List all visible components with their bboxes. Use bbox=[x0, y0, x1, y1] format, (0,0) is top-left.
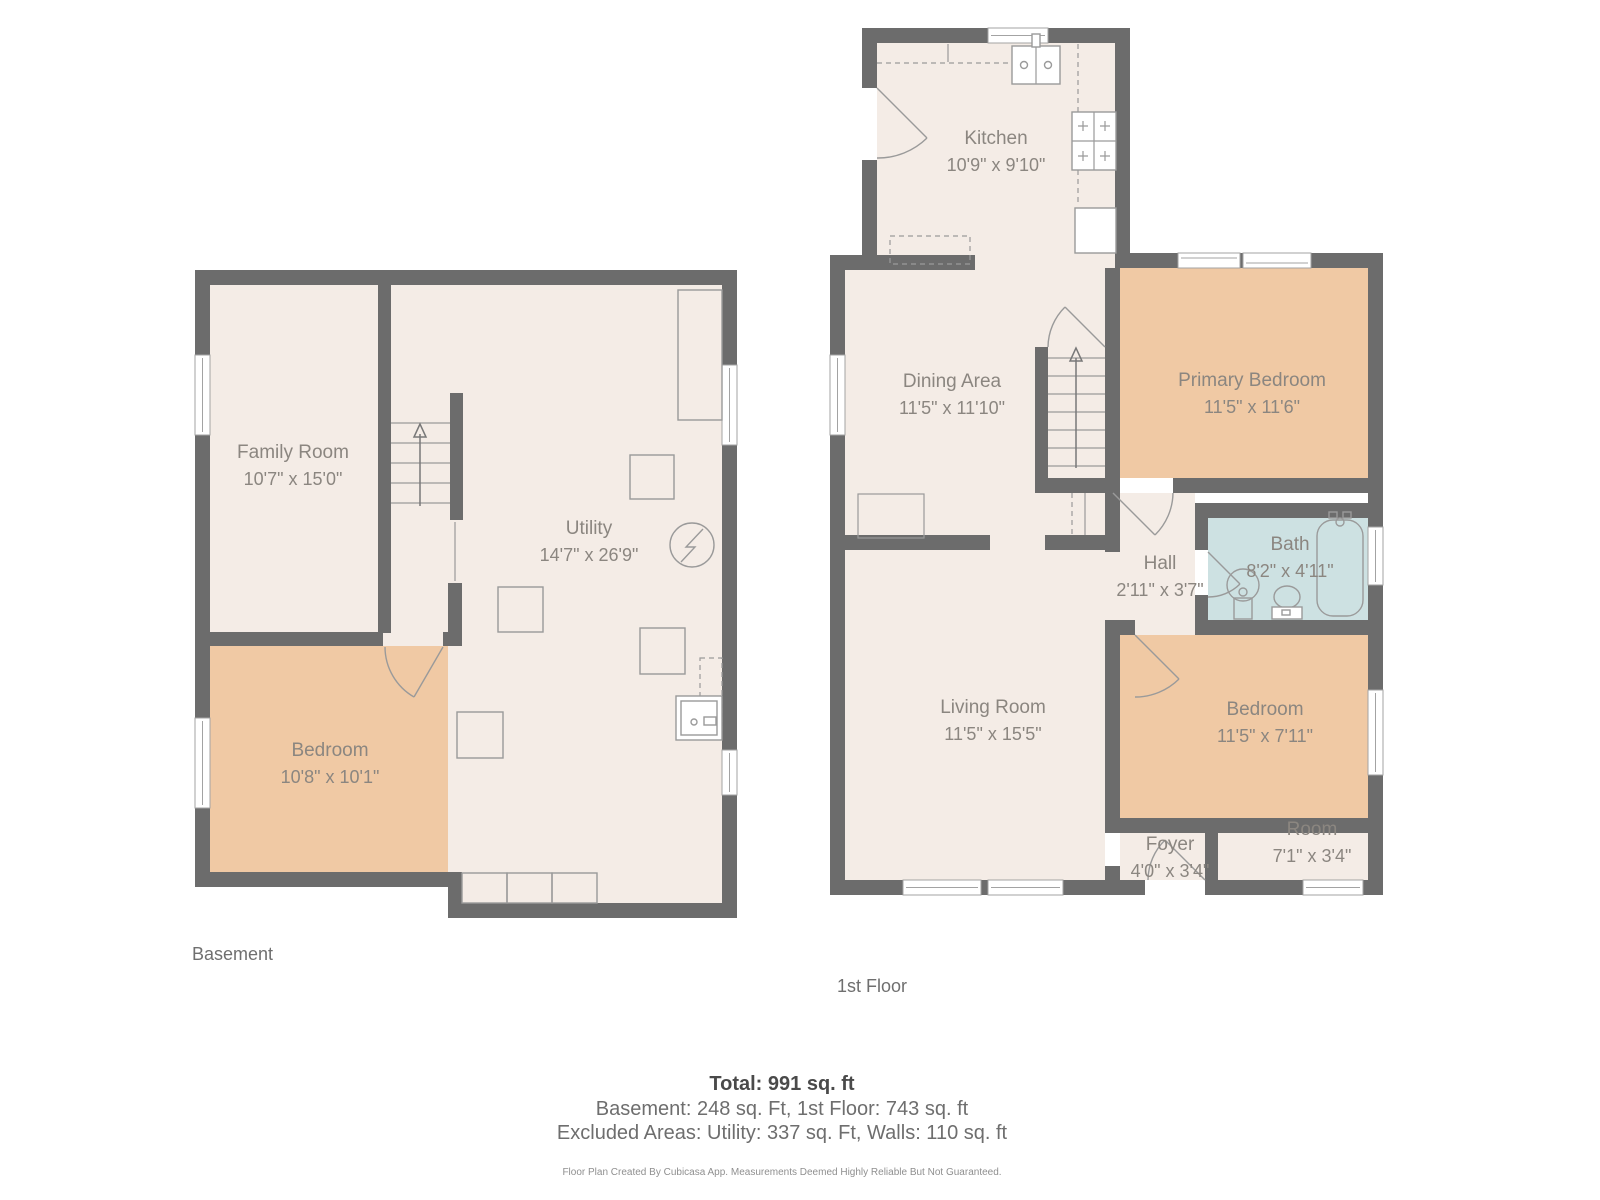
basement-plan bbox=[195, 270, 737, 918]
room-dims: 11'5" x 15'5" bbox=[940, 721, 1046, 747]
window bbox=[1243, 253, 1311, 268]
room-label-basement-bedroom: Bedroom 10'8" x 10'1" bbox=[281, 738, 380, 790]
room-name: Family Room bbox=[237, 440, 349, 466]
room-label-room: Room 7'1" x 3'4" bbox=[1273, 817, 1352, 869]
room-label-living-room: Living Room 11'5" x 15'5" bbox=[940, 695, 1046, 747]
room-dims: 10'8" x 10'1" bbox=[281, 764, 380, 790]
room-name: Bath bbox=[1246, 532, 1333, 558]
room-name: Kitchen bbox=[947, 126, 1046, 152]
room-name: Bedroom bbox=[281, 738, 380, 764]
room-label-dining-area: Dining Area 11'5" x 11'10" bbox=[899, 369, 1005, 421]
room-dims: 4'0" x 3'4" bbox=[1131, 858, 1210, 884]
room-label-bedroom: Bedroom 11'5" x 7'11" bbox=[1217, 697, 1313, 749]
room-name: Foyer bbox=[1131, 832, 1210, 858]
room-name: Room bbox=[1273, 817, 1352, 843]
room-dims: 10'7" x 15'0" bbox=[237, 466, 349, 492]
room-label-foyer: Foyer 4'0" x 3'4" bbox=[1131, 832, 1210, 884]
room-label-primary-bedroom: Primary Bedroom 11'5" x 11'6" bbox=[1178, 368, 1326, 420]
room-dims: 14'7" x 26'9" bbox=[540, 542, 639, 568]
room-name: Living Room bbox=[940, 695, 1046, 721]
room-dims: 11'5" x 7'11" bbox=[1217, 723, 1313, 749]
laundry-sink-icon bbox=[676, 696, 722, 740]
room-dims: 2'11" x 3'7" bbox=[1116, 577, 1203, 603]
excluded-areas: Excluded Areas: Utility: 337 sq. Ft, Wal… bbox=[557, 1121, 1007, 1145]
disclaimer-text: Floor Plan Created By Cubicasa App. Meas… bbox=[557, 1161, 1007, 1185]
room-dims: 10'9" x 9'10" bbox=[947, 152, 1046, 178]
room-name: Primary Bedroom bbox=[1178, 368, 1326, 394]
floor-label-basement: Basement bbox=[192, 944, 273, 965]
area-breakdown: Basement: 248 sq. Ft, 1st Floor: 743 sq.… bbox=[557, 1097, 1007, 1121]
footer-summary: Total: 991 sq. ft Basement: 248 sq. Ft, … bbox=[557, 1072, 1007, 1185]
room-dims: 11'5" x 11'10" bbox=[899, 395, 1005, 421]
room-label-kitchen: Kitchen 10'9" x 9'10" bbox=[947, 126, 1046, 178]
room-name: Dining Area bbox=[899, 369, 1005, 395]
room-dims: 8'2" x 4'11" bbox=[1246, 558, 1333, 584]
first-floor-plan bbox=[830, 28, 1383, 895]
room-label-bath: Bath 8'2" x 4'11" bbox=[1246, 532, 1333, 584]
room-name: Utility bbox=[540, 516, 639, 542]
floor-label-1st-floor: 1st Floor bbox=[837, 976, 907, 997]
room-label-hall: Hall 2'11" x 3'7" bbox=[1116, 551, 1203, 603]
stove-icon bbox=[1072, 112, 1116, 170]
room-name: Bedroom bbox=[1217, 697, 1313, 723]
room-dims: 7'1" x 3'4" bbox=[1273, 843, 1352, 869]
room-label-utility: Utility 14'7" x 26'9" bbox=[540, 516, 639, 568]
room-dims: 11'5" x 11'6" bbox=[1178, 394, 1326, 420]
room-label-family-room: Family Room 10'7" x 15'0" bbox=[237, 440, 349, 492]
total-area: Total: 991 sq. ft bbox=[557, 1072, 1007, 1096]
basement-floor-fill bbox=[210, 285, 722, 903]
floor-plan-page: Family Room 10'7" x 15'0" Utility 14'7" … bbox=[0, 0, 1600, 1200]
floorplan-canvas bbox=[0, 0, 1600, 1200]
window bbox=[1178, 253, 1240, 268]
room-name: Hall bbox=[1116, 551, 1203, 577]
